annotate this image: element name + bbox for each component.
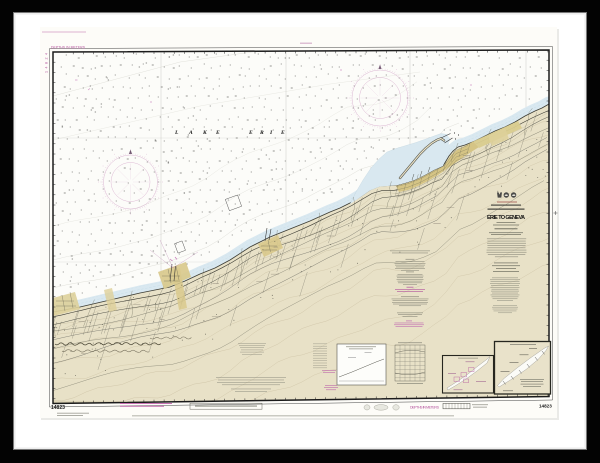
svg-text:E: E xyxy=(248,130,253,136)
svg-text:E: E xyxy=(215,130,220,136)
svg-text:L: L xyxy=(174,130,179,136)
svg-text:DEPTHS IN METERS: DEPTHS IN METERS xyxy=(410,406,440,410)
svg-text:DEPTHS IN METERS: DEPTHS IN METERS xyxy=(51,46,86,50)
svg-text:R: R xyxy=(259,130,264,136)
svg-text:14823: 14823 xyxy=(539,404,552,409)
svg-text:E: E xyxy=(280,130,285,136)
svg-text:ERIE TO GENEVA: ERIE TO GENEVA xyxy=(487,215,525,221)
svg-text:14823: 14823 xyxy=(51,405,65,411)
svg-text:A: A xyxy=(188,130,193,136)
